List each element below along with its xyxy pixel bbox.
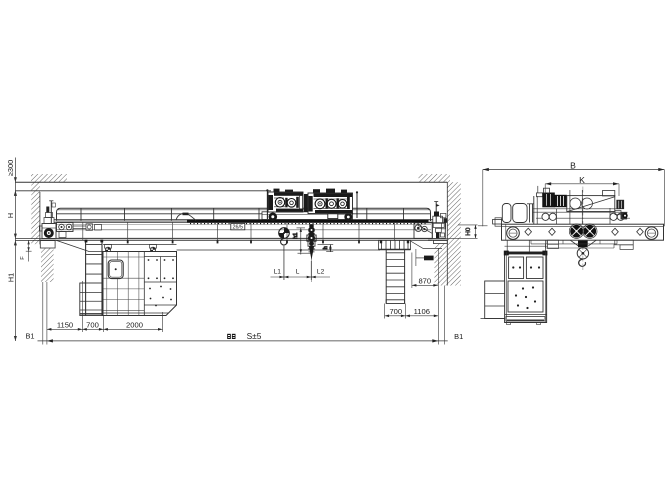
svg-text:B: B bbox=[570, 160, 576, 170]
svg-text:2000: 2000 bbox=[126, 320, 143, 329]
svg-text:B1: B1 bbox=[25, 331, 34, 340]
svg-text:870: 870 bbox=[418, 277, 431, 286]
svg-text:L1: L1 bbox=[274, 269, 282, 276]
svg-text:26/5: 26/5 bbox=[233, 225, 244, 231]
svg-text:S±5: S±5 bbox=[247, 331, 262, 341]
svg-text:1106: 1106 bbox=[414, 307, 430, 316]
svg-text:700: 700 bbox=[86, 320, 99, 329]
svg-text:h: h bbox=[323, 246, 329, 249]
svg-text:H1: H1 bbox=[6, 273, 15, 282]
svg-text:K: K bbox=[579, 175, 585, 185]
svg-text:700: 700 bbox=[389, 307, 402, 316]
svg-text:h1: h1 bbox=[293, 233, 299, 239]
svg-text:L2: L2 bbox=[317, 269, 325, 276]
svg-text:H: H bbox=[6, 213, 15, 218]
svg-text:B1: B1 bbox=[454, 332, 463, 341]
svg-text:1150: 1150 bbox=[57, 320, 73, 329]
svg-text:H0: H0 bbox=[465, 227, 472, 236]
svg-text:≥300: ≥300 bbox=[6, 160, 15, 176]
svg-text:F: F bbox=[20, 256, 26, 260]
svg-text:L: L bbox=[296, 269, 300, 276]
